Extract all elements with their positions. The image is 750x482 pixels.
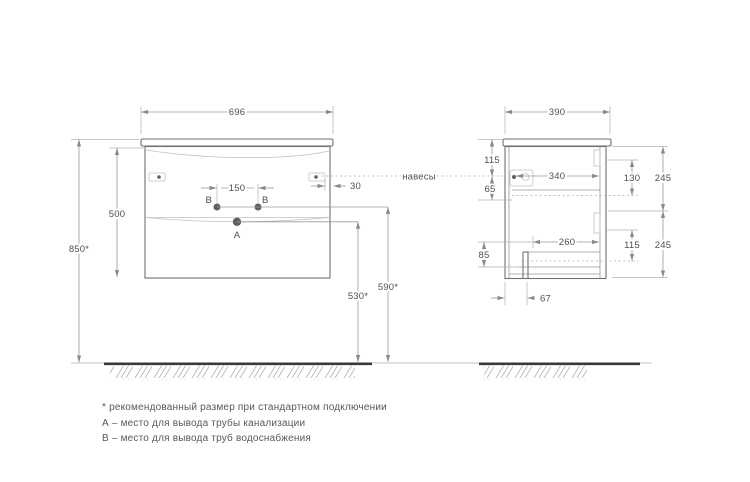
side-depth-label: 390 [549, 107, 565, 118]
bottom-drawer-depth-label: 260 [559, 237, 575, 248]
leg-offset-dimension [491, 282, 534, 305]
top-drawer-depth-label: 340 [549, 171, 565, 182]
floor-hatch-right [484, 366, 587, 380]
water-height-label: 590* [378, 282, 398, 293]
sewer-height-label: 530* [348, 291, 368, 302]
top-front-height-label: 245 [655, 173, 671, 184]
footnote-sewer: А – место для вывода трубы канализации [102, 417, 305, 429]
bottom-gap-label: 85 [479, 250, 490, 261]
front-countertop [141, 139, 333, 146]
side-countertop [503, 139, 611, 146]
side-view [478, 106, 668, 305]
floor-hatch-left [110, 366, 355, 380]
front-cabinet-body [145, 147, 330, 279]
water-outlet-letter-right: В [262, 195, 269, 206]
side-cabinet-body [505, 147, 606, 279]
leg-offset-label: 67 [540, 294, 551, 305]
technical-drawing-page: 696 500 850* 150 30 В В А 590* 530* наве… [0, 0, 750, 482]
pipe-spacing-label: 150 [229, 183, 245, 194]
footnote-water: В – место для вывода труб водоснабжения [102, 432, 311, 444]
floor-line [71, 363, 652, 380]
front-view [71, 106, 388, 363]
hanger-offset-label: 30 [350, 181, 361, 192]
front-total-height-label: 850* [69, 244, 89, 255]
sewer-outlet-letter: А [234, 230, 241, 241]
top-rail-drop-label: 130 [624, 173, 640, 184]
bottom-front-height-label: 245 [655, 240, 671, 251]
water-outlet-letter-left: В [205, 195, 212, 206]
footnotes: * рекомендованный размер при стандартном… [102, 402, 387, 444]
bottom-rail-drop-label: 115 [624, 240, 640, 251]
drawer-front-dimensions [608, 147, 668, 278]
hanger-rail-gap-label: 65 [485, 184, 496, 195]
hanger-top-offset-label: 115 [484, 155, 500, 166]
footnote-recommended-size: * рекомендованный размер при стандартном… [102, 402, 387, 413]
hangers-callout-label: навесы [402, 172, 436, 183]
front-width-label: 696 [229, 107, 245, 118]
front-body-height-label: 500 [109, 209, 125, 220]
vanity-dimension-drawing: 696 500 850* 150 30 В В А 590* 530* наве… [0, 0, 750, 482]
